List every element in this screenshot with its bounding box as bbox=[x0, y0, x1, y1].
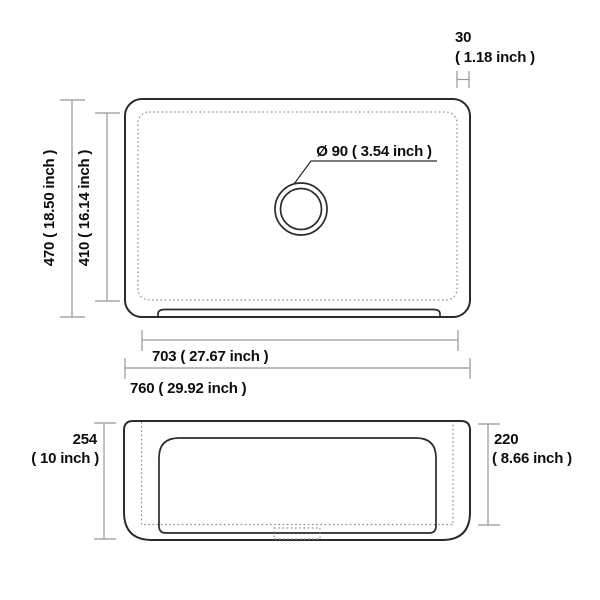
front-view bbox=[124, 421, 470, 540]
outer-depth-label: 470 ( 18.50 inch ) bbox=[41, 150, 58, 267]
top-view-front-lip bbox=[158, 310, 440, 317]
top-view-inner-bowl-dotted bbox=[138, 112, 457, 300]
bowl-depth-inch: ( 8.66 inch ) bbox=[492, 450, 572, 467]
dim-front-height: 254 ( 10 inch ) bbox=[31, 423, 116, 539]
rim-offset-inch: ( 1.18 inch ) bbox=[455, 49, 535, 66]
drain-outer-circle bbox=[275, 183, 327, 235]
dim-bowl-depth: 220 ( 8.66 inch ) bbox=[478, 424, 572, 525]
sink-dimension-diagram: Ø 90 ( 3.54 inch ) 470 ( 18.50 inch ) 41… bbox=[0, 0, 600, 600]
dim-inner-depth: 410 ( 16.14 inch ) bbox=[76, 113, 120, 301]
inner-width-label: 703 ( 27.67 inch ) bbox=[152, 348, 269, 365]
dim-rim-offset: 30 ( 1.18 inch ) bbox=[455, 29, 535, 88]
drain-inner-circle bbox=[281, 189, 322, 230]
diagram-canvas: Ø 90 ( 3.54 inch ) 470 ( 18.50 inch ) 41… bbox=[0, 0, 600, 600]
bowl-depth-value: 220 bbox=[494, 431, 518, 448]
inner-depth-label: 410 ( 16.14 inch ) bbox=[76, 150, 93, 267]
outer-width-label: 760 ( 29.92 inch ) bbox=[130, 380, 247, 397]
top-view-outer-rim bbox=[125, 99, 470, 317]
dim-inner-width: 703 ( 27.67 inch ) bbox=[142, 330, 458, 365]
front-height-inch: ( 10 inch ) bbox=[31, 450, 99, 467]
drain-leader-line bbox=[294, 161, 437, 184]
rim-offset-value: 30 bbox=[455, 29, 471, 46]
front-height-value: 254 bbox=[73, 431, 98, 448]
top-view: Ø 90 ( 3.54 inch ) bbox=[125, 99, 470, 317]
front-view-apron-panel bbox=[159, 438, 436, 533]
drain-diameter-label: Ø 90 ( 3.54 inch ) bbox=[316, 143, 432, 160]
